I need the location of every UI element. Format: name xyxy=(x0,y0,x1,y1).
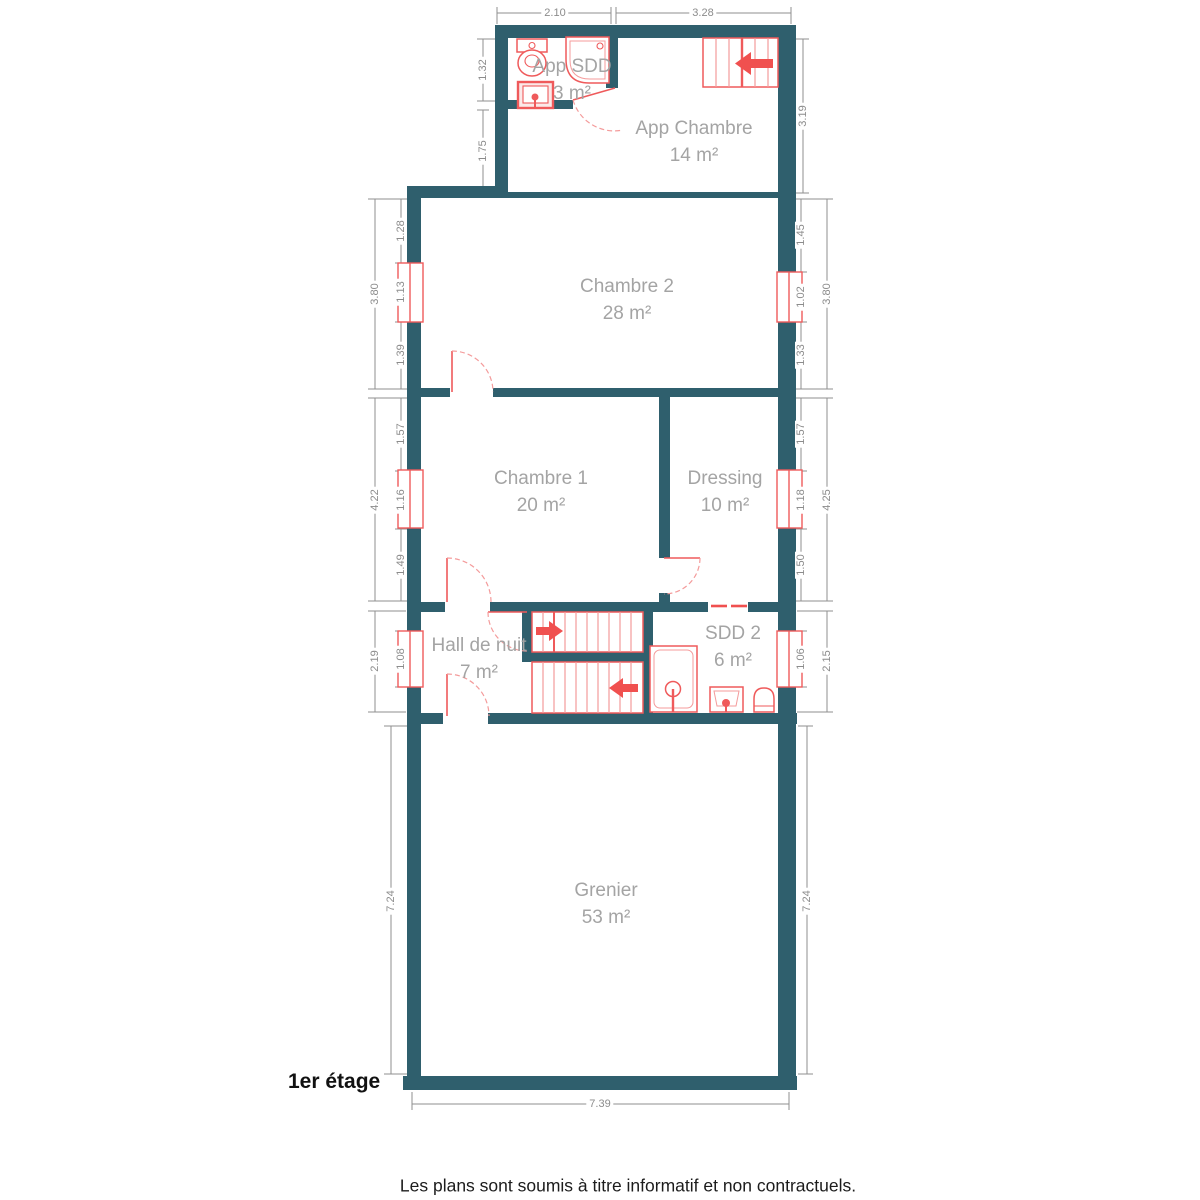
dim-chambre2-right-3: 1.33 xyxy=(795,341,807,368)
dim-top-app-chambre: 3.28 xyxy=(689,7,716,19)
dimension-lines xyxy=(368,7,833,1110)
dim-sdd2-right: 1.06 xyxy=(795,645,807,672)
dim-chambre2-right-total: 3.80 xyxy=(821,280,833,307)
stairs-app-chambre xyxy=(703,38,778,87)
stairs-main-lower-flight xyxy=(532,662,643,713)
shower-icon xyxy=(650,646,697,712)
dim-sdd2-right-total: 2.15 xyxy=(821,647,833,674)
floor-plan-drawing xyxy=(0,0,1200,1200)
room-label-app-sdd: App SDD3 m² xyxy=(532,53,611,107)
dim-chambre2-left-total: 3.80 xyxy=(369,280,381,307)
dim-chambre2-left-2: 1.13 xyxy=(395,278,407,305)
room-label-hall: Hall de nuit7 m² xyxy=(431,632,526,686)
disclaimer-text: Les plans sont soumis à titre informatif… xyxy=(400,1176,856,1197)
room-label-dressing: Dressing10 m² xyxy=(688,465,763,519)
dim-app-left-lower: 1.75 xyxy=(477,137,489,164)
dim-chambre2-left-1: 1.28 xyxy=(395,217,407,244)
dim-hall-left: 1.08 xyxy=(395,645,407,672)
dim-grenier-left: 7.24 xyxy=(385,887,397,914)
dim-chambre1-left-total: 4.22 xyxy=(369,486,381,513)
dim-grenier-right: 7.24 xyxy=(801,887,813,914)
toilet-icon xyxy=(754,688,774,712)
room-label-grenier: Grenier53 m² xyxy=(574,877,637,931)
floor-plan-canvas: App SDD3 m² App Chambre14 m² Chambre 228… xyxy=(0,0,1200,1200)
dim-chambre2-right-2: 1.02 xyxy=(795,283,807,310)
room-label-app-chambre: App Chambre14 m² xyxy=(635,115,752,169)
dim-app-left-upper: 1.32 xyxy=(477,56,489,83)
dim-chambre2-left-3: 1.39 xyxy=(395,341,407,368)
dim-chambre1-right-2: 1.18 xyxy=(795,486,807,513)
door-chambre2 xyxy=(452,351,493,392)
dim-chambre1-right-total: 4.25 xyxy=(821,486,833,513)
dim-bottom: 7.39 xyxy=(586,1098,613,1110)
room-label-chambre2: Chambre 228 m² xyxy=(580,273,674,327)
dim-hall-left-total: 2.19 xyxy=(369,647,381,674)
room-label-chambre1: Chambre 120 m² xyxy=(494,465,588,519)
stairs-main-upper-flight xyxy=(532,612,643,652)
dim-chambre1-right-1: 1.57 xyxy=(795,420,807,447)
door-dressing xyxy=(664,558,700,594)
room-label-sdd2: SDD 26 m² xyxy=(705,620,761,674)
dim-chambre2-right-1: 1.45 xyxy=(795,221,807,248)
dim-chambre1-left-2: 1.16 xyxy=(395,486,407,513)
dim-chambre1-left-1: 1.57 xyxy=(395,420,407,447)
dim-top-app-sdd: 2.10 xyxy=(541,7,568,19)
door-chambre1 xyxy=(447,558,491,602)
dim-chambre1-right-3: 1.50 xyxy=(795,551,807,578)
floor-title: 1er étage xyxy=(288,1070,380,1094)
dim-chambre1-left-3: 1.49 xyxy=(395,551,407,578)
dim-app-right: 3.19 xyxy=(797,102,809,129)
sink-icon xyxy=(710,687,743,712)
